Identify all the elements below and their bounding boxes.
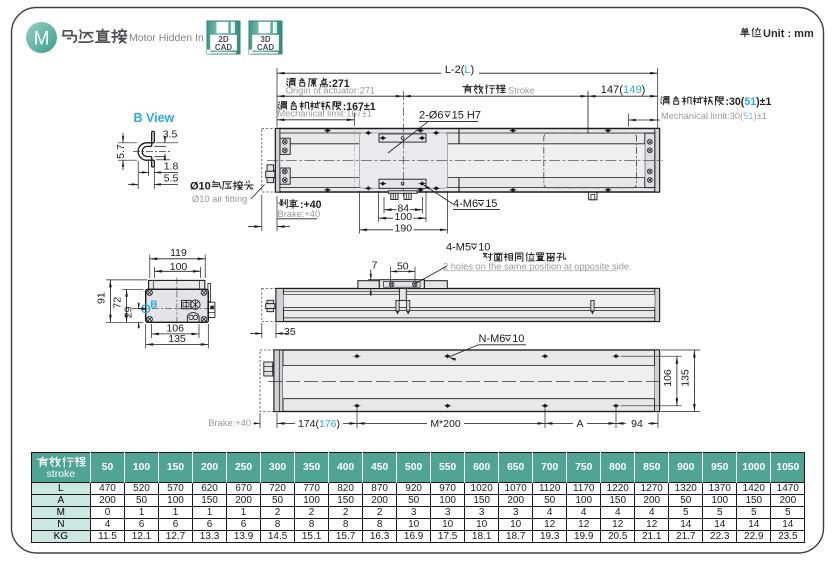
svg-text:4-M6: 4-M6 [453,198,478,210]
svg-text:5.7: 5.7 [115,144,127,159]
svg-text:84: 84 [397,202,409,214]
svg-text:L-2(L): L-2(L) [445,64,474,76]
svg-text:1.8: 1.8 [164,160,179,172]
svg-text:M: M [34,29,50,50]
svg-text:106: 106 [166,322,184,334]
svg-text:5.5: 5.5 [164,173,179,185]
svg-text:135: 135 [679,369,691,387]
svg-text:106: 106 [662,369,674,387]
svg-text:Mechanical limit:30(51)±1: Mechanical limit:30(51)±1 [661,111,767,121]
svg-text:10: 10 [512,333,524,345]
svg-text:100: 100 [395,211,413,223]
svg-text:N-M6: N-M6 [479,333,506,345]
svg-text:Brake:+40: Brake:+40 [278,209,321,219]
svg-text:4-M5: 4-M5 [446,242,471,254]
svg-text:Brake:+40: Brake:+40 [208,418,251,428]
svg-text::167±1: :167±1 [343,101,376,113]
svg-text:10: 10 [478,242,490,254]
svg-text:3.5: 3.5 [163,129,178,141]
svg-text:Mechanical limit:167±1: Mechanical limit:167±1 [278,109,373,119]
svg-text:147(149): 147(149) [601,84,646,96]
svg-text:119: 119 [170,247,187,259]
svg-text:15 H7: 15 H7 [452,109,481,121]
svg-text:29: 29 [122,306,134,318]
svg-text:50: 50 [397,260,409,272]
svg-text:B View: B View [134,111,175,125]
svg-text:Ø10: Ø10 [190,181,211,193]
svg-text:174(176): 174(176) [298,418,340,430]
svg-text:Motor Hidden In: Motor Hidden In [129,32,204,44]
svg-text:CAD: CAD [215,43,233,52]
svg-text:2-Ø6: 2-Ø6 [419,109,443,121]
svg-text:2 holes on the same position a: 2 holes on the same position at opposite… [443,261,632,271]
svg-text:CAD: CAD [257,43,275,52]
svg-text:B: B [150,300,157,311]
svg-text:190: 190 [395,223,413,235]
svg-text:91: 91 [96,292,108,304]
svg-text:Ø10 air fitting: Ø10 air fitting [192,194,247,204]
svg-text::+40: :+40 [300,199,322,211]
svg-text:94: 94 [631,418,643,430]
svg-text:3D: 3D [260,35,270,44]
svg-text::271: :271 [329,78,350,90]
svg-text:2D: 2D [218,35,228,44]
svg-text:M*200: M*200 [430,418,461,430]
svg-text:Stroke: Stroke [508,86,535,96]
svg-text:Origin of actuator:271: Origin of actuator:271 [286,86,375,96]
svg-text:7: 7 [372,260,378,272]
svg-text:Unit : mm: Unit : mm [763,28,814,40]
svg-text:135: 135 [168,333,186,345]
svg-text:A: A [576,418,583,430]
svg-text:100: 100 [170,261,188,273]
svg-text:72: 72 [112,297,124,309]
svg-text::30(51)±1: :30(51)±1 [726,96,772,108]
svg-text:15: 15 [485,198,497,210]
svg-text:35: 35 [284,326,296,338]
